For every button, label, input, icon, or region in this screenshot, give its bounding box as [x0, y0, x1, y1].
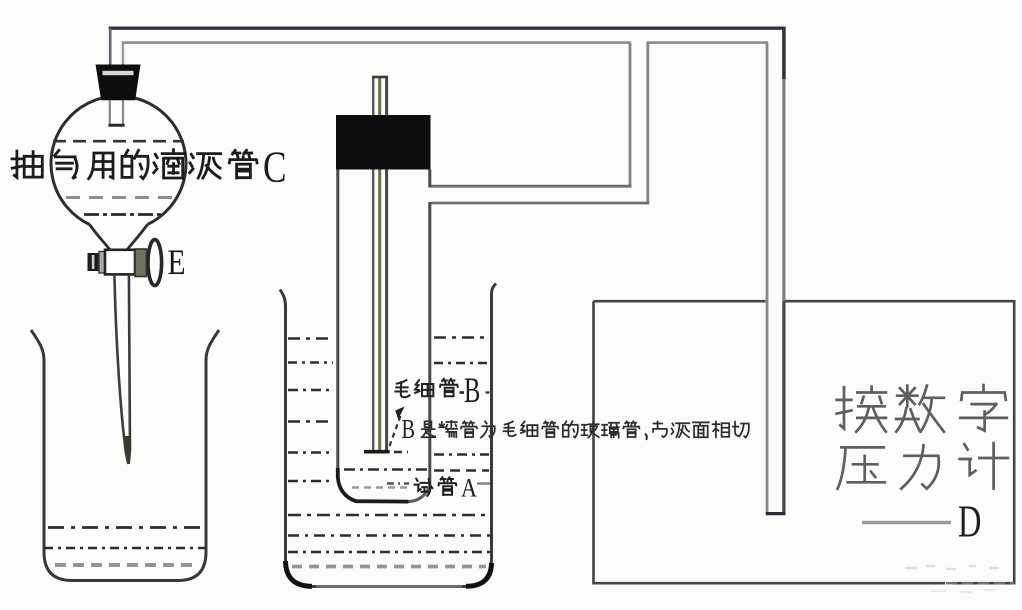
svg-text:B: B: [464, 370, 480, 410]
svg-text:C: C: [263, 142, 286, 192]
svg-text:D: D: [958, 497, 981, 546]
svg-text:E: E: [168, 243, 186, 282]
svg-text:B: B: [402, 415, 416, 444]
svg-text:A: A: [461, 475, 477, 503]
